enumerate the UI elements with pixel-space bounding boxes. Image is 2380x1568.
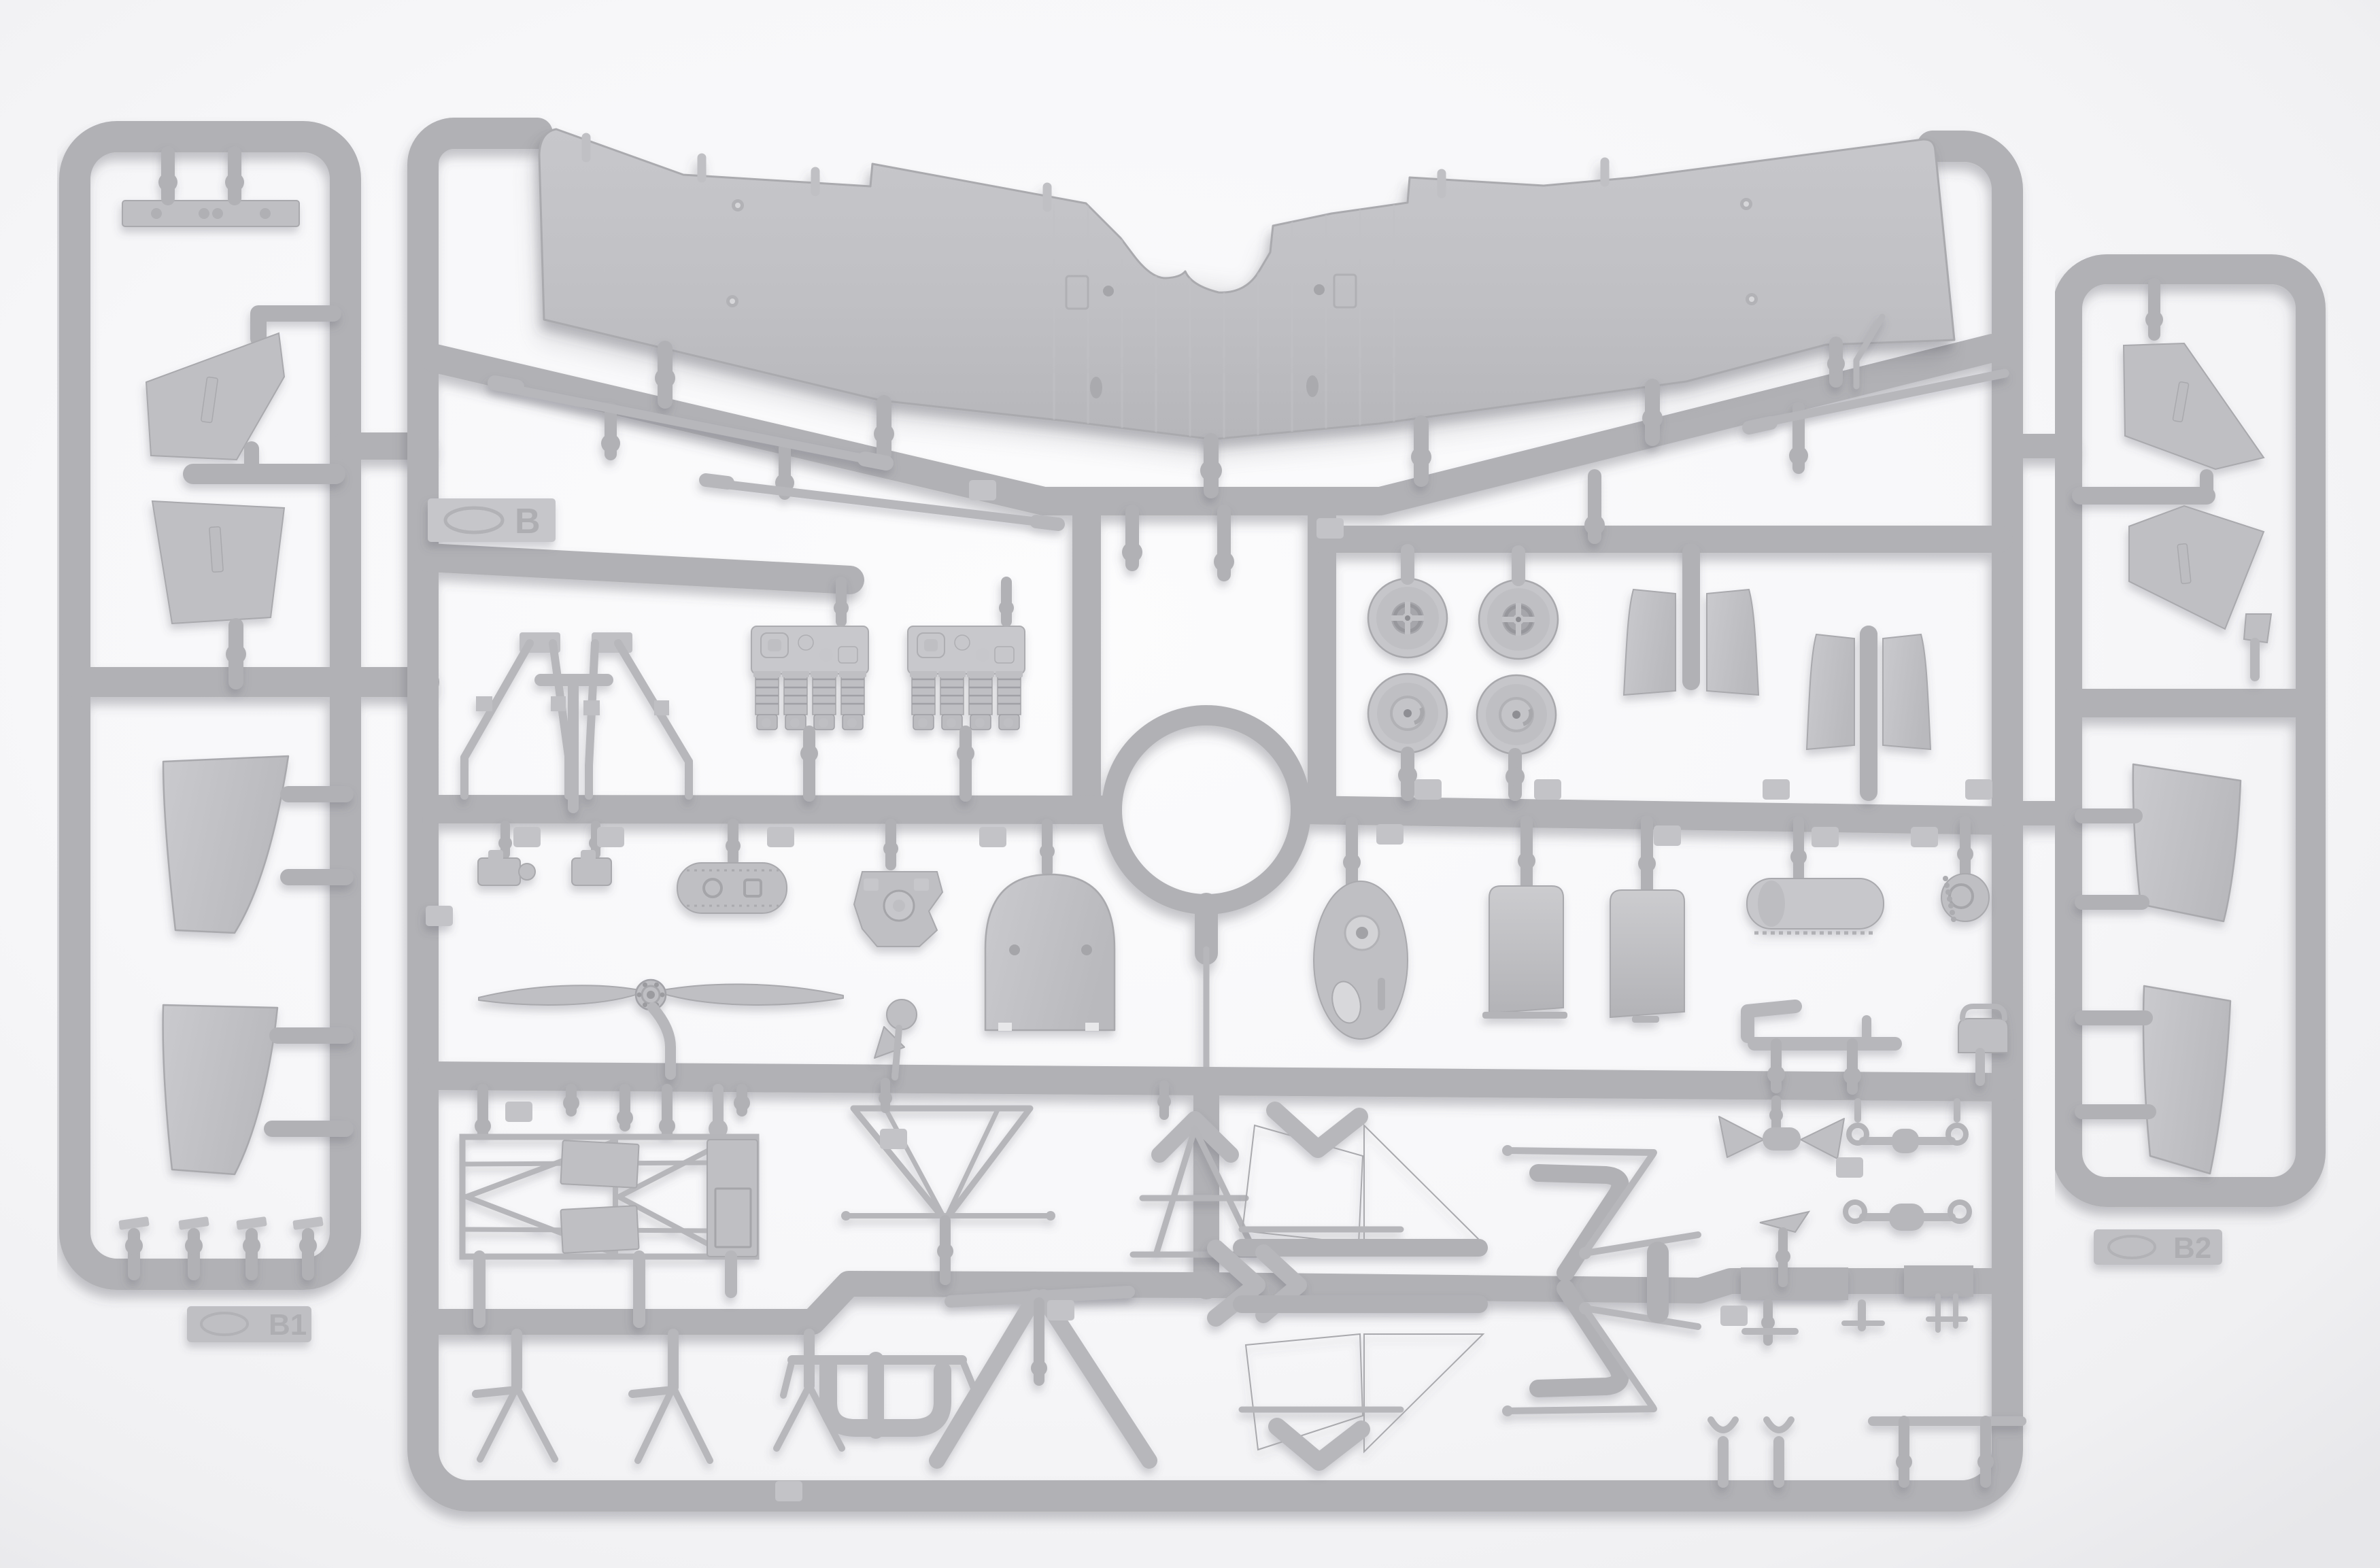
svg-text:B2: B2 bbox=[2173, 1231, 2211, 1265]
svg-text:B1: B1 bbox=[269, 1308, 307, 1342]
svg-text:B: B bbox=[515, 502, 541, 541]
